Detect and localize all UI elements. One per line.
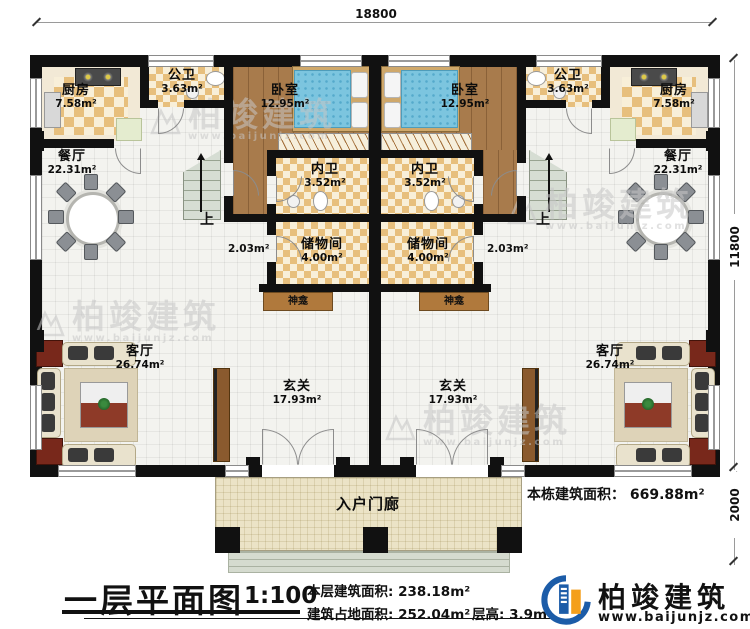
- room-label-bedroom: 卧室12.95m²: [420, 84, 510, 110]
- wall: [224, 214, 369, 222]
- room-label-living: 客厅26.74m²: [100, 345, 180, 371]
- room-label-bedroom: 卧室12.95m²: [240, 84, 330, 110]
- stairs-up-label: 上: [536, 209, 550, 229]
- toilet-symbol: [313, 191, 328, 211]
- wall: [592, 100, 601, 108]
- wall: [149, 100, 158, 108]
- window-symbol: [501, 465, 525, 477]
- coffee-table-symbol: [80, 382, 128, 428]
- chair-symbol: [654, 174, 668, 190]
- floor-height-stat: 层高: 3.9m: [472, 603, 547, 623]
- window-symbol: [225, 465, 249, 477]
- wall-pier: [706, 131, 720, 151]
- pillow: [351, 72, 368, 98]
- wall-pier: [706, 330, 720, 352]
- room-label-foyer: 玄关17.93m²: [413, 380, 493, 406]
- wall-pier: [400, 457, 414, 477]
- window-symbol: [614, 465, 692, 477]
- wall: [636, 139, 708, 148]
- sofa-cushion: [695, 414, 709, 432]
- title-underline: [62, 610, 300, 614]
- pillow: [384, 72, 401, 98]
- porch-column: [363, 527, 388, 553]
- door-opening: [262, 465, 334, 477]
- wall: [517, 67, 526, 163]
- window-symbol: [300, 55, 362, 67]
- company-logo-icon: [540, 574, 592, 626]
- chair-symbol: [48, 210, 64, 224]
- porch-column: [497, 527, 522, 553]
- floor-plan: 18800 11800 2000 柏竣建筑 www.baijunjz.com 柏…: [0, 0, 750, 629]
- sofa-cushion: [68, 346, 88, 360]
- chair-symbol: [618, 210, 634, 224]
- room-label-ensuite-bath: 内卫3.52m²: [285, 163, 365, 189]
- dimension-line-top: [37, 22, 713, 23]
- company-website: www.baijunjz.com: [598, 610, 750, 625]
- room-label-living: 客厅26.74m²: [570, 345, 650, 371]
- wall: [42, 139, 114, 148]
- footprint-area-stat: 建筑占地面积: 252.04m²: [307, 603, 470, 623]
- total-building-area: 本栋建筑面积： 669.88m²: [527, 484, 705, 504]
- wall: [267, 150, 276, 176]
- window-symbol: [148, 55, 214, 67]
- window-symbol: [30, 175, 42, 260]
- porch-column: [215, 527, 240, 553]
- dimension-tick: [708, 17, 717, 26]
- chair-symbol: [654, 244, 668, 260]
- sofa-cushion: [41, 372, 55, 390]
- sofa-cushion: [662, 346, 682, 360]
- stairs-arrow: [548, 160, 550, 212]
- closet-area-label: 2.03m²: [228, 243, 269, 255]
- window-symbol: [388, 55, 450, 67]
- stairs-arrow: [200, 160, 202, 212]
- room-label-storage: 储物间4.00m²: [388, 238, 468, 264]
- room-label-foyer: 玄关17.93m²: [257, 380, 337, 406]
- chair-symbol: [84, 244, 98, 260]
- fridge-symbol: [116, 118, 142, 141]
- sofa-cushion: [41, 414, 55, 432]
- room-label-ensuite-bath: 内卫3.52m²: [385, 163, 465, 189]
- porch-label: 入户门廊: [298, 496, 438, 513]
- wall-pier: [336, 457, 350, 477]
- window-symbol: [536, 55, 602, 67]
- room-label-dining: 餐厅22.31m²: [642, 150, 714, 176]
- sofa-cushion: [695, 393, 709, 411]
- wall: [267, 222, 276, 235]
- room-label-public-bath: 公卫3.63m²: [528, 69, 608, 95]
- window-symbol: [708, 175, 720, 260]
- room-label-kitchen: 厨房7.58m²: [634, 84, 714, 110]
- sofa-cushion: [94, 448, 114, 462]
- window-symbol: [30, 385, 42, 450]
- window-symbol: [708, 385, 720, 450]
- wall: [259, 284, 369, 292]
- wall: [381, 214, 526, 222]
- wall: [381, 284, 491, 292]
- sofa-cushion: [662, 448, 682, 462]
- fridge-symbol: [610, 118, 636, 141]
- plan-title: 一层平面图: [64, 574, 244, 622]
- stairs-up-label: 上: [200, 209, 214, 229]
- chair-symbol: [688, 210, 704, 224]
- toilet-symbol: [424, 191, 439, 211]
- coffee-table-symbol: [624, 382, 672, 428]
- porch-steps: [228, 551, 510, 573]
- sofa-cushion: [695, 372, 709, 390]
- wall-pier: [30, 330, 44, 352]
- window-symbol: [58, 465, 136, 477]
- room-label-public-bath: 公卫3.63m²: [142, 69, 222, 95]
- wall: [276, 150, 369, 158]
- stairs-arrow-head: [197, 153, 205, 160]
- shrine-cabinet: 神龛: [419, 292, 489, 311]
- room-label-kitchen: 厨房7.58m²: [36, 84, 116, 110]
- dimension-right-height: 11800: [728, 214, 742, 280]
- wall: [381, 150, 474, 158]
- room-label-dining: 餐厅22.31m²: [36, 150, 108, 176]
- floor-area-stat: 本层建筑面积: 238.18m²: [307, 580, 470, 600]
- chair-symbol: [84, 174, 98, 190]
- tv-cabinet-symbol: [522, 368, 539, 462]
- sofa-cushion: [41, 393, 55, 411]
- dimension-tick: [729, 462, 738, 471]
- stairs-arrow-head: [545, 153, 553, 160]
- tv-cabinet-symbol: [213, 368, 230, 462]
- wall-pier: [30, 131, 44, 151]
- dimension-porch-depth: 2000: [728, 472, 742, 538]
- pillow: [351, 102, 368, 128]
- door-opening: [416, 465, 488, 477]
- wall: [224, 67, 233, 163]
- plant-symbol: [642, 398, 654, 410]
- sofa-cushion: [68, 448, 88, 462]
- wall: [474, 150, 483, 176]
- shrine-cabinet: 神龛: [263, 292, 333, 311]
- room-label-storage: 储物间4.00m²: [282, 238, 362, 264]
- closet-area-label: 2.03m²: [487, 243, 528, 255]
- wall-center-party: [369, 55, 381, 477]
- sofa-cushion: [636, 448, 656, 462]
- wall: [474, 222, 483, 235]
- plant-symbol: [98, 398, 110, 410]
- pillow: [384, 102, 401, 128]
- dimension-top-width: 18800: [345, 7, 407, 21]
- chair-symbol: [118, 210, 134, 224]
